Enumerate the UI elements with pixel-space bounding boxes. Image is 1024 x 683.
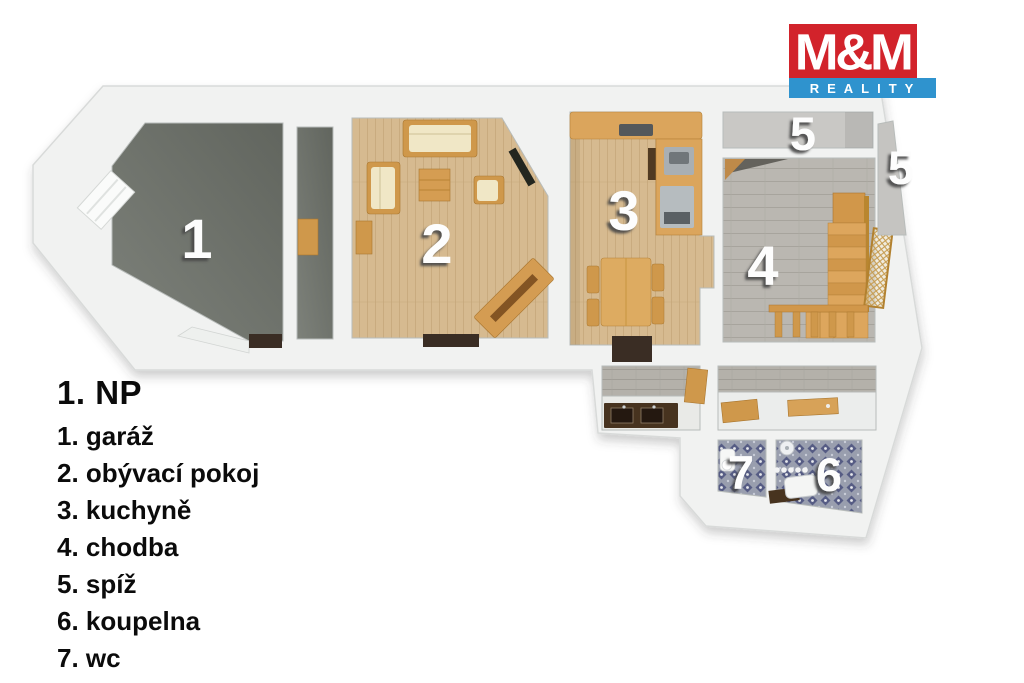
- corridor-door-1: [721, 399, 759, 423]
- bathtub: [784, 474, 818, 499]
- utility-sink-counter: [604, 403, 678, 428]
- door-handle: [826, 404, 830, 408]
- legend-title: 1. NP: [57, 374, 259, 412]
- room-number-1: 1: [181, 207, 212, 270]
- logo-reality-text: REALITY: [804, 81, 922, 96]
- vestibule-door: [298, 219, 318, 255]
- room-number-4: 4: [747, 234, 778, 297]
- legend: 1. NP 1. garáž 2. obývací pokoj 3. kuchy…: [57, 374, 259, 677]
- kitchen-threshold: [612, 336, 652, 362]
- cooktop: [619, 124, 653, 136]
- room-corridor: [718, 366, 876, 430]
- sofa-left: [367, 162, 400, 214]
- room-number-2: 2: [421, 212, 452, 275]
- legend-item-pantry: 5. spíž: [57, 566, 259, 603]
- shower-icon: [780, 441, 794, 455]
- stair-handrail: [769, 305, 868, 312]
- legend-item-living: 2. obývací pokoj: [57, 455, 259, 492]
- legend-item-hall: 4. chodba: [57, 529, 259, 566]
- logo-mm-text: M&M: [795, 21, 911, 80]
- garage-threshold: [249, 334, 282, 348]
- legend-item-garage: 1. garáž: [57, 418, 259, 455]
- room-vestibule: [297, 127, 333, 339]
- utility-door: [684, 368, 707, 404]
- room-number-5b: 5: [888, 141, 914, 194]
- room-number-3: 3: [608, 179, 639, 242]
- armchair: [474, 176, 504, 204]
- legend-item-wc: 7. wc: [57, 640, 259, 677]
- living-door: [356, 221, 372, 254]
- living-threshold: [423, 334, 479, 347]
- room-kitchen: [570, 112, 714, 362]
- legend-item-kitchen: 3. kuchyně: [57, 492, 259, 529]
- oven: [660, 186, 694, 228]
- screenshot-stage: 1 2 3 4 5 5 6 7 1. NP 1. garáž 2. obývac…: [0, 0, 1024, 683]
- logo-mm-block: M&M: [789, 24, 917, 78]
- room-number-7: 7: [728, 446, 754, 499]
- room-number-5a: 5: [790, 107, 816, 160]
- room-utility: [602, 366, 708, 430]
- coffee-table: [419, 169, 450, 201]
- sofa-top: [403, 120, 477, 157]
- legend-item-bathroom: 6. koupelna: [57, 603, 259, 640]
- sink: [664, 147, 694, 175]
- corridor-door-2: [788, 398, 839, 417]
- room-number-6: 6: [816, 448, 842, 501]
- brand-logo: M&M REALITY: [789, 24, 936, 98]
